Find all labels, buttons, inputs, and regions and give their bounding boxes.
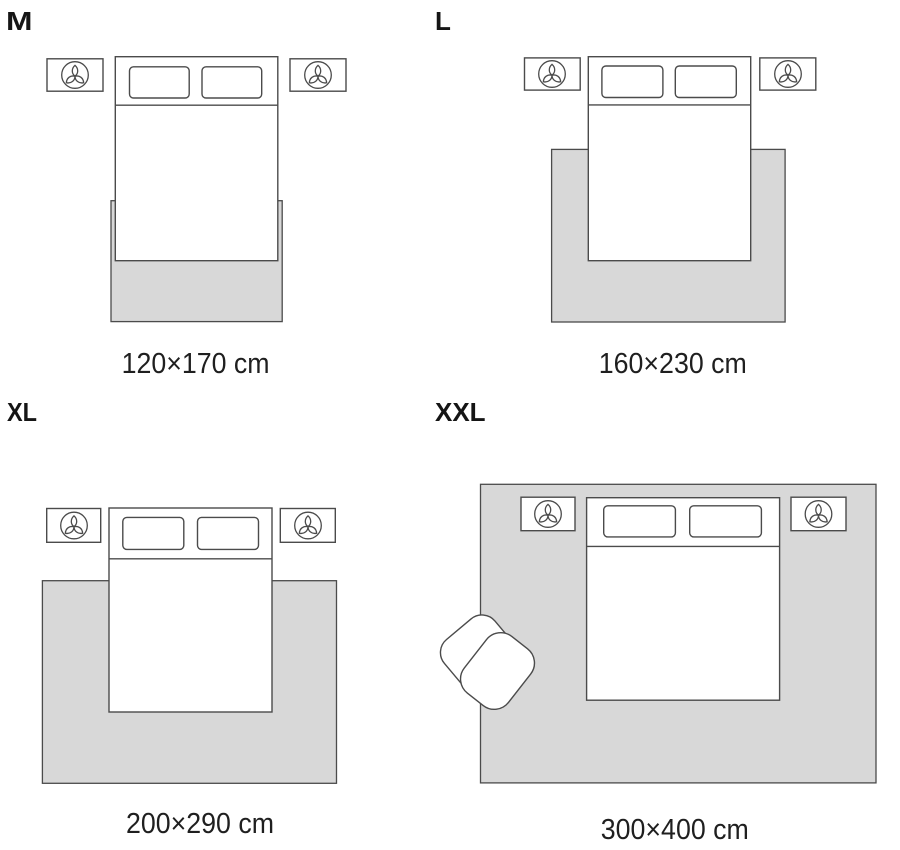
svg-text:200×290 cm: 200×290 cm	[126, 808, 274, 840]
svg-text:XXL: XXL	[435, 397, 486, 427]
svg-text:120×170 cm: 120×170 cm	[122, 348, 270, 380]
svg-text:160×230 cm: 160×230 cm	[599, 348, 747, 380]
svg-text:XL: XL	[7, 397, 37, 427]
svg-text:M: M	[6, 6, 33, 36]
svg-text:300×400 cm: 300×400 cm	[601, 814, 749, 846]
svg-text:L: L	[435, 6, 451, 36]
